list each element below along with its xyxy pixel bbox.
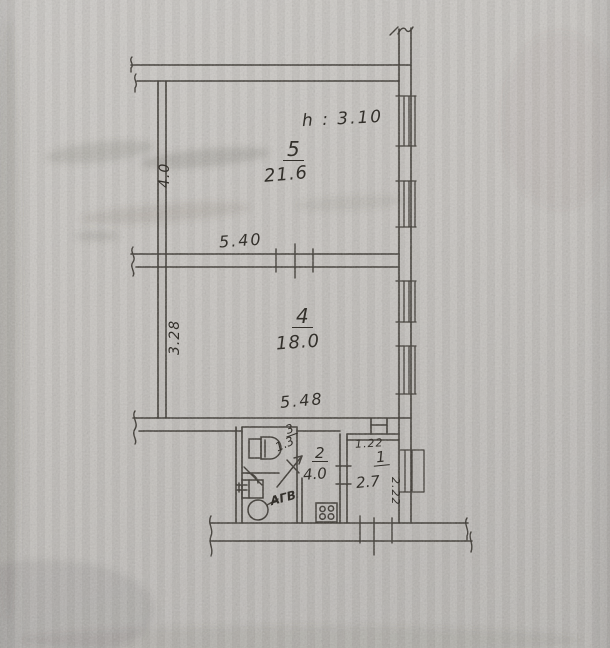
room5-number: 5 <box>283 139 304 161</box>
room1-number: 1 <box>372 449 389 467</box>
dim-room4-side: 3.28 <box>168 320 182 355</box>
room2-number: 2 <box>312 446 328 462</box>
dim-room1-depth: 2.22 <box>390 477 401 506</box>
room1-area: 2.7 <box>355 474 380 491</box>
room2-area: 4.0 <box>303 466 328 483</box>
room5-area: 21.6 <box>263 164 308 186</box>
dim-room5-width: 5.40 <box>218 231 263 250</box>
ceiling-height-note: h : 3.10 <box>302 109 384 130</box>
room4-area: 18.0 <box>275 332 320 353</box>
dim-room5-side: 4.0 <box>158 163 172 188</box>
dim-room4-width: 5.48 <box>279 391 324 411</box>
room4-number: 4 <box>292 306 313 328</box>
floor-plan-sheet: h : 3.10 5 21.6 4.0 5.40 4 18.0 3.28 5.4… <box>0 0 610 648</box>
